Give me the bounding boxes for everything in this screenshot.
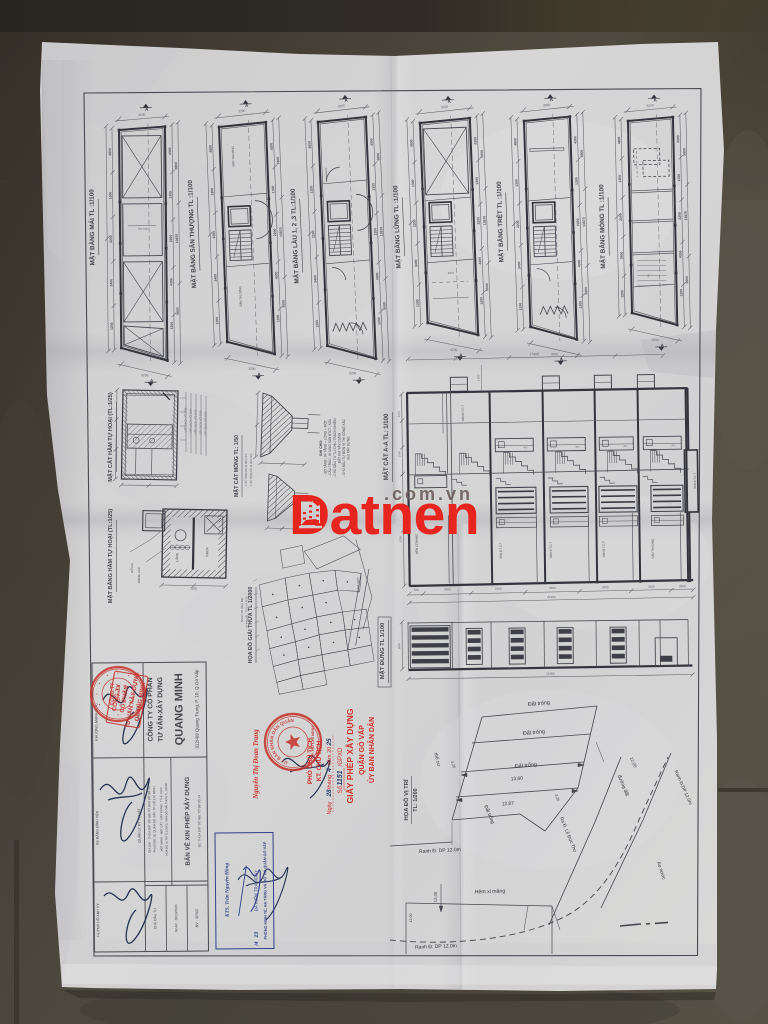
svg-text:Nguyễn Thị Đoan Trang: Nguyễn Thị Đoan Trang — [253, 729, 260, 800]
svg-text:3200: 3200 — [238, 109, 246, 114]
svg-text:4300: 4300 — [478, 257, 482, 265]
svg-text:VỊ KHU ĐẤT: VỊ KHU ĐẤT — [355, 577, 360, 593]
svg-text:CHỨA: CHỨA — [204, 546, 209, 556]
svg-text:SÂN THƯỢNG: SÂN THƯỢNG — [651, 538, 655, 559]
svg-text:ĐỊA CHỈ : THỬA ĐẤT SỐ 689 TỜ B: ĐỊA CHỈ : THỬA ĐẤT SỐ 689 TỜ BẢN ĐỒ SỐ 2… — [146, 786, 152, 853]
svg-text:Nhóm 00 thửa BĐ: Nhóm 00 thửa BĐ — [240, 597, 244, 622]
svg-text:3400: 3400 — [620, 252, 624, 260]
svg-text:28: 28 — [326, 789, 333, 798]
svg-text:1. BÊ TÔNG ĐÁ 12 MÁC 200: 1. BÊ TÔNG ĐÁ 12 MÁC 200 — [245, 453, 248, 486]
svg-text:5600: 5600 — [281, 300, 285, 308]
svg-text:13870: 13870 — [175, 234, 179, 244]
svg-text:4300: 4300 — [370, 138, 374, 146]
svg-text:17900: 17900 — [529, 352, 539, 356]
svg-text:MẶT CẮT A-A TL: 1/100: MẶT CẮT A-A TL: 1/100 — [382, 413, 390, 480]
svg-text:25: 25 — [326, 738, 333, 747]
svg-text:312/4/9 Quang Trung, P. 10, Q.: 312/4/9 Quang Trung, P. 10, Q.Gò Vấp — [194, 669, 200, 749]
svg-text:5600: 5600 — [382, 302, 386, 310]
svg-text:GIẤY PHÉP XÂY DỰNG: GIẤY PHÉP XÂY DỰNG — [344, 708, 355, 803]
svg-text:1200: 1200 — [110, 322, 114, 330]
svg-text:SÀN B.T.C.T: SÀN B.T.C.T — [549, 542, 553, 559]
svg-text:400: 400 — [623, 445, 628, 448]
svg-text:5600: 5600 — [685, 276, 689, 284]
svg-text:1200: 1200 — [315, 320, 319, 328]
svg-text:HỌA ĐỒ VỊ TRÍ: HỌA ĐỒ VỊ TRÍ — [402, 779, 410, 820]
svg-text:tháng: tháng — [327, 775, 333, 789]
svg-text:SÂN THƯỢNG: SÂN THƯỢNG — [237, 285, 243, 306]
svg-text:- SỐ TẦNG : 04 TẦNG + LỬNG + M: - SỐ TẦNG : 04 TẦNG + LỬNG + MỘT — [323, 420, 328, 476]
svg-text:12,00: 12,00 — [433, 891, 438, 902]
svg-text:2700: 2700 — [495, 587, 502, 591]
svg-text:4800: 4800 — [108, 148, 112, 156]
svg-text:1200: 1200 — [377, 317, 381, 325]
svg-text:3400: 3400 — [549, 586, 556, 590]
svg-text:4300: 4300 — [676, 135, 680, 143]
svg-text:1200: 1200 — [679, 289, 683, 297]
svg-text:5800: 5800 — [682, 148, 686, 156]
svg-text:5600: 5600 — [584, 287, 588, 295]
svg-text:SÀN B.T.C.T: SÀN B.T.C.T — [602, 541, 606, 558]
svg-text:M1: M1 — [646, 273, 650, 277]
svg-text:1300: 1300 — [475, 177, 479, 185]
svg-text:2200: 2200 — [273, 228, 277, 236]
svg-text:4800: 4800 — [617, 136, 621, 144]
svg-text:400: 400 — [523, 446, 528, 449]
svg-text:400: 400 — [575, 446, 580, 449]
svg-text:1200: 1200 — [170, 322, 174, 330]
svg-text:4300: 4300 — [168, 147, 172, 155]
svg-text:1200: 1200 — [519, 303, 523, 311]
svg-text:MẶT BẰNG - MẶT CẮT - MẶT ĐỨNG: MẶT BẰNG - MẶT CẮT - MẶT ĐỨNG - TỈ LỆ 1/… — [158, 787, 164, 851]
svg-text:4800: 4800 — [409, 139, 413, 147]
svg-text:1300: 1300 — [371, 183, 375, 191]
svg-text:MẶT CẮT HẦM TỰ HOẠI (TL:1/25): MẶT CẮT HẦM TỰ HOẠI (TL:1/25) — [106, 392, 114, 482]
svg-text:- CẤU TRÚC : KHUNG SÀN BTCT ,: - CẤU TRÚC : KHUNG SÀN BTCT , MÁI — [327, 419, 332, 477]
svg-text:NGÀY : 30/10/2024: NGÀY : 30/10/2024 — [174, 904, 178, 932]
svg-text:1.300: 1.300 — [476, 374, 480, 381]
svg-text:2200: 2200 — [412, 219, 416, 227]
svg-text:4300: 4300 — [269, 143, 273, 151]
svg-text:13,60: 13,60 — [511, 775, 524, 782]
svg-text:3400: 3400 — [602, 585, 609, 589]
svg-text:5800: 5800 — [376, 153, 380, 161]
svg-text:1200: 1200 — [215, 317, 219, 325]
svg-text:2800: 2800 — [679, 584, 686, 588]
svg-text:3200: 3200 — [349, 371, 356, 375]
svg-text:1200: 1200 — [480, 297, 484, 305]
svg-text:13870: 13870 — [279, 227, 283, 237]
svg-text:13870: 13870 — [684, 211, 688, 221]
svg-text:13870: 13870 — [482, 216, 486, 226]
svg-text:2200: 2200 — [516, 220, 520, 228]
svg-text:2400: 2400 — [444, 587, 451, 591]
svg-text:tờ bản đồ : Thủ 24 P.15: tờ bản đồ : Thủ 24 P.15 — [245, 596, 249, 628]
svg-text:3200: 3200 — [551, 352, 558, 356]
svg-text:1300: 1300 — [271, 186, 275, 194]
svg-text:PHÒNG KINH TẾ, HẠ TẦNG VÀ ĐÔ T: PHÒNG KINH TẾ, HẠ TẦNG VÀ ĐÔ THỊ QUẬN GÒ… — [262, 841, 268, 939]
svg-text:3400: 3400 — [414, 259, 418, 267]
svg-text:ĐC: THỬA ĐẤT SỐ 689, TỜ BĐ SỐ: ĐC: THỬA ĐẤT SỐ 689, TỜ BĐ SỐ 24 — [196, 794, 201, 847]
svg-text:SÂN THƯỢNG: SÂN THƯỢNG — [230, 145, 236, 166]
svg-text:13870: 13870 — [582, 217, 586, 227]
svg-text:SÂN B.T.C.T: SÂN B.T.C.T — [461, 405, 465, 422]
svg-text:2200: 2200 — [109, 235, 113, 243]
svg-text:4800: 4800 — [513, 138, 517, 146]
svg-text:3200: 3200 — [646, 103, 654, 108]
svg-text:BẢN VẼ XIN PHÉP XÂY DỰNG: BẢN VẼ XIN PHÉP XÂY DỰNG — [183, 777, 192, 866]
svg-text:KS ĐẶNG ĐÌNH YÊN: KS ĐẶNG ĐÌNH YÊN — [94, 810, 99, 845]
svg-text:400: 400 — [671, 444, 676, 447]
svg-text:HỌA ĐỒ VỊ TRÍ TL1/2000, HỌA ĐỒ: HỌA ĐỒ VỊ TRÍ TL1/2000, HỌA ĐỒ GIẢI THỬA… — [163, 783, 169, 856]
svg-text:1200: 1200 — [578, 301, 582, 309]
svg-text:1300: 1300 — [618, 175, 622, 183]
svg-text:TL: 1/200: TL: 1/200 — [413, 788, 419, 811]
svg-text:500: 500 — [414, 588, 419, 592]
svg-text:5800: 5800 — [397, 643, 401, 650]
svg-text:SÀN B.T.C.T: SÀN B.T.C.T — [693, 473, 697, 489]
svg-text:2200: 2200 — [678, 212, 682, 220]
svg-text:/GPXD: /GPXD — [338, 747, 344, 766]
svg-text:1300: 1300 — [411, 179, 415, 187]
svg-text:SN THG: SN THG — [138, 227, 148, 231]
svg-text:2970: 2970 — [448, 271, 455, 275]
svg-text:2200: 2200 — [373, 228, 377, 236]
svg-text:Hẻm xi măng: Hẻm xi măng — [475, 888, 506, 895]
svg-text:2200: 2200 — [212, 231, 216, 239]
svg-text:MẶT CẮT MÓNG TL: 1/50: MẶT CẮT MÓNG TL: 1/50 — [232, 435, 240, 497]
svg-text:2200: 2200 — [476, 217, 480, 225]
svg-text:5800: 5800 — [276, 157, 280, 165]
svg-text:1300: 1300 — [677, 174, 681, 182]
svg-text:KTS. Trần Nguyên Hồng: KTS. Trần Nguyên Hồng — [223, 862, 230, 917]
svg-text:1200: 1200 — [620, 290, 624, 298]
svg-text:1300: 1300 — [515, 179, 519, 187]
svg-text:1300: 1300 — [575, 177, 579, 185]
svg-text:12,00: 12,00 — [409, 914, 413, 923]
svg-text:BV : XPXD: BV : XPXD — [195, 909, 199, 928]
svg-text:1300: 1300 — [168, 191, 172, 199]
svg-text:3200: 3200 — [338, 104, 346, 109]
svg-text:ỦY BAN NHÂN DÂN: ỦY BAN NHÂN DÂN — [367, 717, 376, 783]
svg-text:3400: 3400 — [517, 261, 521, 269]
svg-text:3400: 3400 — [213, 274, 217, 282]
svg-text:CHỦ ĐẦU TƯ: CHỦ ĐẦU TƯ — [152, 908, 157, 929]
svg-text:HỐ GA: HỐ GA — [129, 563, 134, 573]
svg-text:4300: 4300 — [169, 278, 173, 286]
svg-text:5800: 5800 — [480, 150, 484, 158]
svg-text:3400: 3400 — [109, 279, 113, 287]
svg-text:4800: 4800 — [308, 141, 312, 149]
svg-text:4300: 4300 — [577, 260, 581, 268]
svg-text:1151: 1151 — [337, 770, 344, 785]
svg-text:3200: 3200 — [138, 112, 146, 117]
svg-text:PHƯỜNG 15, QUẬN GÒ VẤP, TP. HỒ: PHƯỜNG 15, QUẬN GÒ VẤP, TP. HỒ CHÍ MINH — [151, 786, 157, 852]
svg-text:5800: 5800 — [174, 162, 178, 170]
svg-text:MẶT ĐỨNG TL 1/100: MẶT ĐỨNG TL 1/100 — [379, 623, 386, 680]
svg-text:1200: 1200 — [416, 299, 420, 307]
svg-text:SÀN B.T.C.T: SÀN B.T.C.T — [499, 542, 503, 559]
svg-text:- CHỦ ĐẦU TƯ ĐƠN VỊ THI CÔNG X: - CHỦ ĐẦU TƯ ĐƠN VỊ THI CÔNG XÁC — [341, 418, 346, 477]
svg-text:4300: 4300 — [375, 272, 379, 280]
svg-text:MÀNG LỌC: MÀNG LỌC — [137, 566, 141, 583]
svg-text:2470: 2470 — [397, 411, 401, 418]
svg-text:2200: 2200 — [169, 235, 173, 243]
svg-text:21900: 21900 — [547, 595, 556, 599]
svg-text:1500: 1500 — [397, 451, 401, 458]
svg-text:Ngày: Ngày — [327, 801, 333, 814]
svg-text:2200: 2200 — [311, 230, 315, 238]
svg-text:3400: 3400 — [648, 585, 655, 589]
svg-text:1300: 1300 — [210, 188, 214, 196]
svg-text:12,87: 12,87 — [502, 800, 515, 807]
svg-text:4300: 4300 — [679, 250, 683, 258]
svg-text:13870: 13870 — [379, 227, 383, 237]
svg-text:4800: 4800 — [208, 145, 212, 153]
svg-text:3200: 3200 — [441, 105, 449, 110]
svg-text:3200: 3200 — [450, 348, 457, 352]
svg-text:4: 4 — [326, 768, 333, 773]
svg-text:LẮNG: LẮNG — [174, 552, 179, 561]
svg-text:2200: 2200 — [190, 586, 197, 590]
svg-text:3200: 3200 — [248, 367, 255, 371]
svg-text:5600: 5600 — [485, 283, 489, 291]
svg-text:3200: 3200 — [141, 373, 148, 377]
svg-text:5800: 5800 — [580, 150, 584, 158]
svg-text:- CHỦ ĐẦU TƯ TỰ CHỊU TRÁCH NHI: - CHỦ ĐẦU TƯ TỰ CHỊU TRÁCH NHIỆM — [332, 418, 337, 477]
svg-text:4300: 4300 — [274, 271, 278, 279]
svg-text:QUANG MINH: QUANG MINH — [173, 673, 186, 745]
svg-text:TP. HỒ CHÍ MINH: TP. HỒ CHÍ MINH — [310, 726, 315, 758]
svg-text:3200: 3200 — [543, 103, 551, 108]
svg-text:4300: 4300 — [473, 137, 477, 145]
svg-text:ĐẤT KHI XÂY DỰNG: ĐẤT KHI XÂY DỰNG — [337, 432, 341, 463]
svg-text:2200: 2200 — [576, 218, 580, 226]
svg-text:năm 20: năm 20 — [327, 747, 333, 766]
svg-text:21900: 21900 — [546, 672, 555, 676]
svg-text:1300: 1300 — [108, 192, 112, 200]
svg-text:1300: 1300 — [309, 186, 313, 194]
svg-text:23: 23 — [254, 932, 260, 939]
svg-text:1. BÊ TÔNG ĐÁ 12 MÁC 200: 1. BÊ TÔNG ĐÁ 12 MÁC 200 — [250, 453, 253, 486]
svg-text:3400: 3400 — [313, 275, 317, 283]
svg-text:KHI XÂY DỰNG: KHI XÂY DỰNG — [347, 436, 351, 460]
svg-text:/4: /4 — [254, 941, 260, 946]
svg-text:GHI CHÚ:: GHI CHÚ: — [318, 440, 323, 456]
svg-text:4300: 4300 — [573, 136, 577, 144]
svg-text:HUỲNH HỒ ANH VY: HUỲNH HỒ ANH VY — [95, 903, 100, 937]
svg-text:5600: 5600 — [176, 307, 180, 315]
svg-text:1200: 1200 — [276, 314, 280, 322]
svg-text:2200: 2200 — [619, 213, 623, 221]
svg-text:3200: 3200 — [652, 338, 659, 342]
svg-text:MẶT BẰNG HẦM TỰ HOẠI (TL:1/25): MẶT BẰNG HẦM TỰ HOẠI (TL:1/25) — [106, 509, 114, 604]
